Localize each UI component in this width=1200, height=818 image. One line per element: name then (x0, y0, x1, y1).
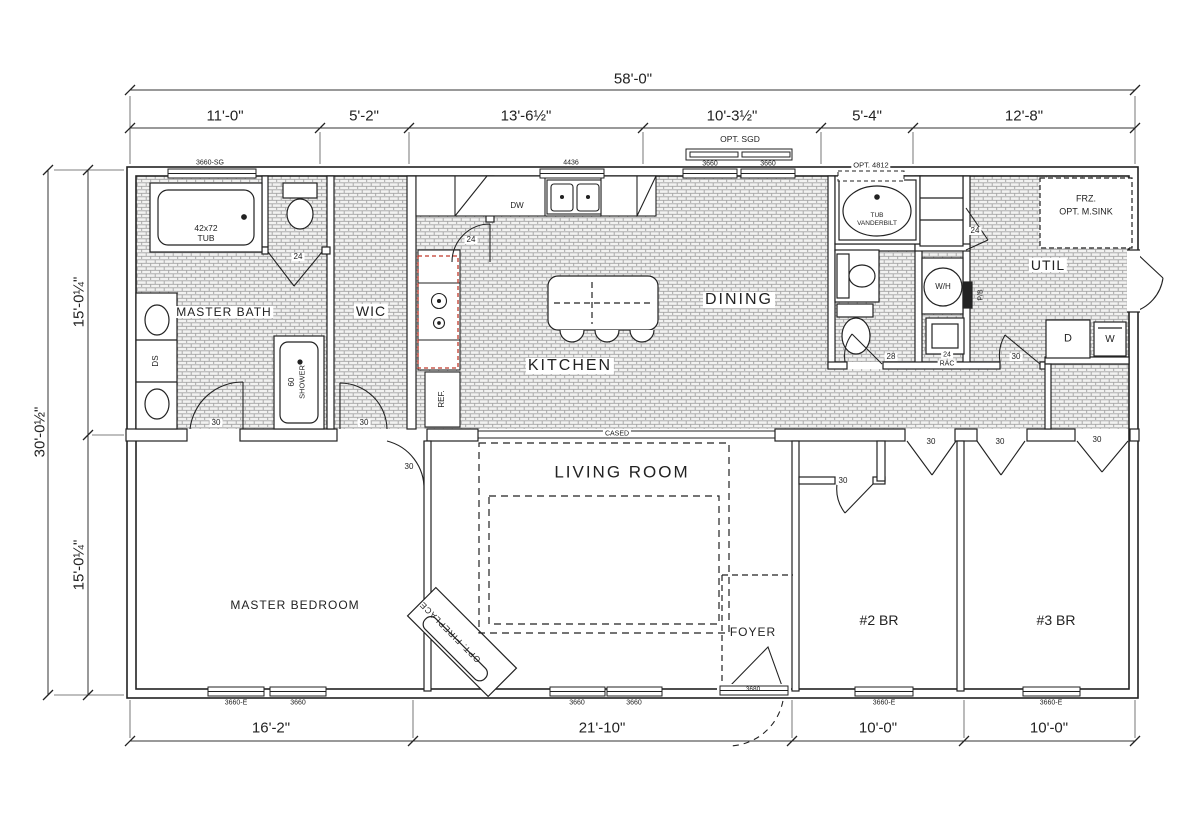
dim-top-1: 11'-0" (206, 109, 243, 124)
door-30-br2: 30 (925, 438, 938, 446)
util-backdoor-gap (1127, 250, 1140, 312)
pb-label: P/B (978, 289, 985, 300)
dim-bottom-2: 21'-10" (579, 721, 626, 736)
floor-plan-canvas: 58'-0" 11'-0" 5'-2" 13'-6½" 10'-3½" 5'-4… (0, 0, 1200, 818)
dim-bottom-4: 10'-0" (1030, 721, 1068, 736)
window-tag-3660e-br3: 3660-E (1040, 700, 1063, 707)
dim-left-1: 15'-0¼" (72, 277, 87, 328)
dim-top-4: 10'-3½" (707, 109, 758, 124)
shower-size-label: 60 (288, 378, 296, 387)
room-util: UTIL (1029, 258, 1067, 272)
dim-bottom-1: 16'-2" (252, 721, 290, 736)
door-30-master-bedroom: 30 (405, 463, 414, 471)
freezer-label: FRZ. (1076, 195, 1096, 204)
opt-sgd-tag: OPT. SGD (720, 135, 760, 144)
room-kitchen: KITCHEN (526, 358, 614, 374)
tub2-brand-label: VANDERBILT (857, 221, 897, 228)
dim-left-2: 15'-0¼" (72, 540, 87, 591)
cased-opening-tag: CASED (603, 431, 631, 438)
rac-label: RAC (938, 361, 957, 368)
door-24-master-bath: 24 (292, 253, 305, 261)
opt-4812-tag: OPT. 4812 (851, 161, 890, 169)
window-tag-3660sg: 3660-SG (196, 160, 224, 167)
door-30-util: 30 (1010, 353, 1023, 361)
room-wic: WIC (354, 304, 388, 318)
room-master-bedroom: MASTER BEDROOM (230, 599, 359, 611)
tub-size-label: 42x72 (194, 224, 217, 233)
window-tag-3660-lv1: 3660 (569, 700, 585, 707)
window-tag-3660-dining1: 3660 (702, 161, 718, 168)
door-tag-3680: 3680 (746, 687, 760, 694)
window-tag-4436: 4436 (563, 160, 579, 167)
dim-top-total: 58'-0" (614, 72, 652, 87)
shower-label: SHOWER (298, 365, 306, 399)
washer-label: W (1105, 335, 1114, 345)
door-30-br3: 30 (994, 438, 1007, 446)
window-tag-3660e-br2: 3660-E (873, 700, 896, 707)
room-bedroom2: #2 BR (860, 613, 899, 627)
window-tag-3660-dining2: 3660 (760, 161, 776, 168)
door-30-br3-closet: 30 (1091, 436, 1104, 444)
door-28-hall-bath: 28 (885, 353, 898, 361)
room-master-bath: MASTER BATH (174, 306, 273, 318)
dual-sinks-label: DS (152, 355, 160, 366)
door-30-wic: 30 (358, 419, 371, 427)
rac-size-label: 24 (941, 352, 953, 359)
door-30-master-bath-entry: 30 (210, 419, 223, 427)
sliding-glass-door (686, 149, 792, 160)
dishwasher-label: DW (510, 202, 523, 210)
dim-top-5: 5'-4" (852, 109, 882, 124)
door-24-linen: 24 (969, 227, 982, 235)
water-heater-label: W/H (935, 283, 951, 291)
dim-top-2: 5'-2" (349, 109, 379, 124)
dim-top-6: 12'-8" (1005, 109, 1043, 124)
tub-label: TUB (198, 234, 215, 243)
room-foyer: FOYER (730, 626, 776, 638)
dim-bottom-3: 10'-0" (859, 721, 897, 736)
window-tag-3660-mbr: 3660 (290, 700, 306, 707)
dim-left-total: 30'-0½" (33, 407, 48, 458)
room-living: LIVING ROOM (554, 464, 689, 481)
fridge-label: REF. (438, 390, 446, 407)
door-24-kitchen: 24 (465, 236, 478, 244)
window-tag-3660e-mbr: 3660-E (225, 700, 248, 707)
room-dining: DINING (703, 292, 775, 308)
opt-msink-label: OPT. M.SINK (1059, 208, 1113, 217)
dryer-label: D (1064, 334, 1072, 345)
tub2-label: TUB (871, 213, 884, 220)
door-30-br2-closet: 30 (837, 477, 850, 485)
kitchen-island (548, 276, 658, 342)
room-bedroom3: #3 BR (1037, 613, 1076, 627)
window-tag-3660-lv2: 3660 (626, 700, 642, 707)
dim-top-3: 13'-6½" (501, 109, 552, 124)
